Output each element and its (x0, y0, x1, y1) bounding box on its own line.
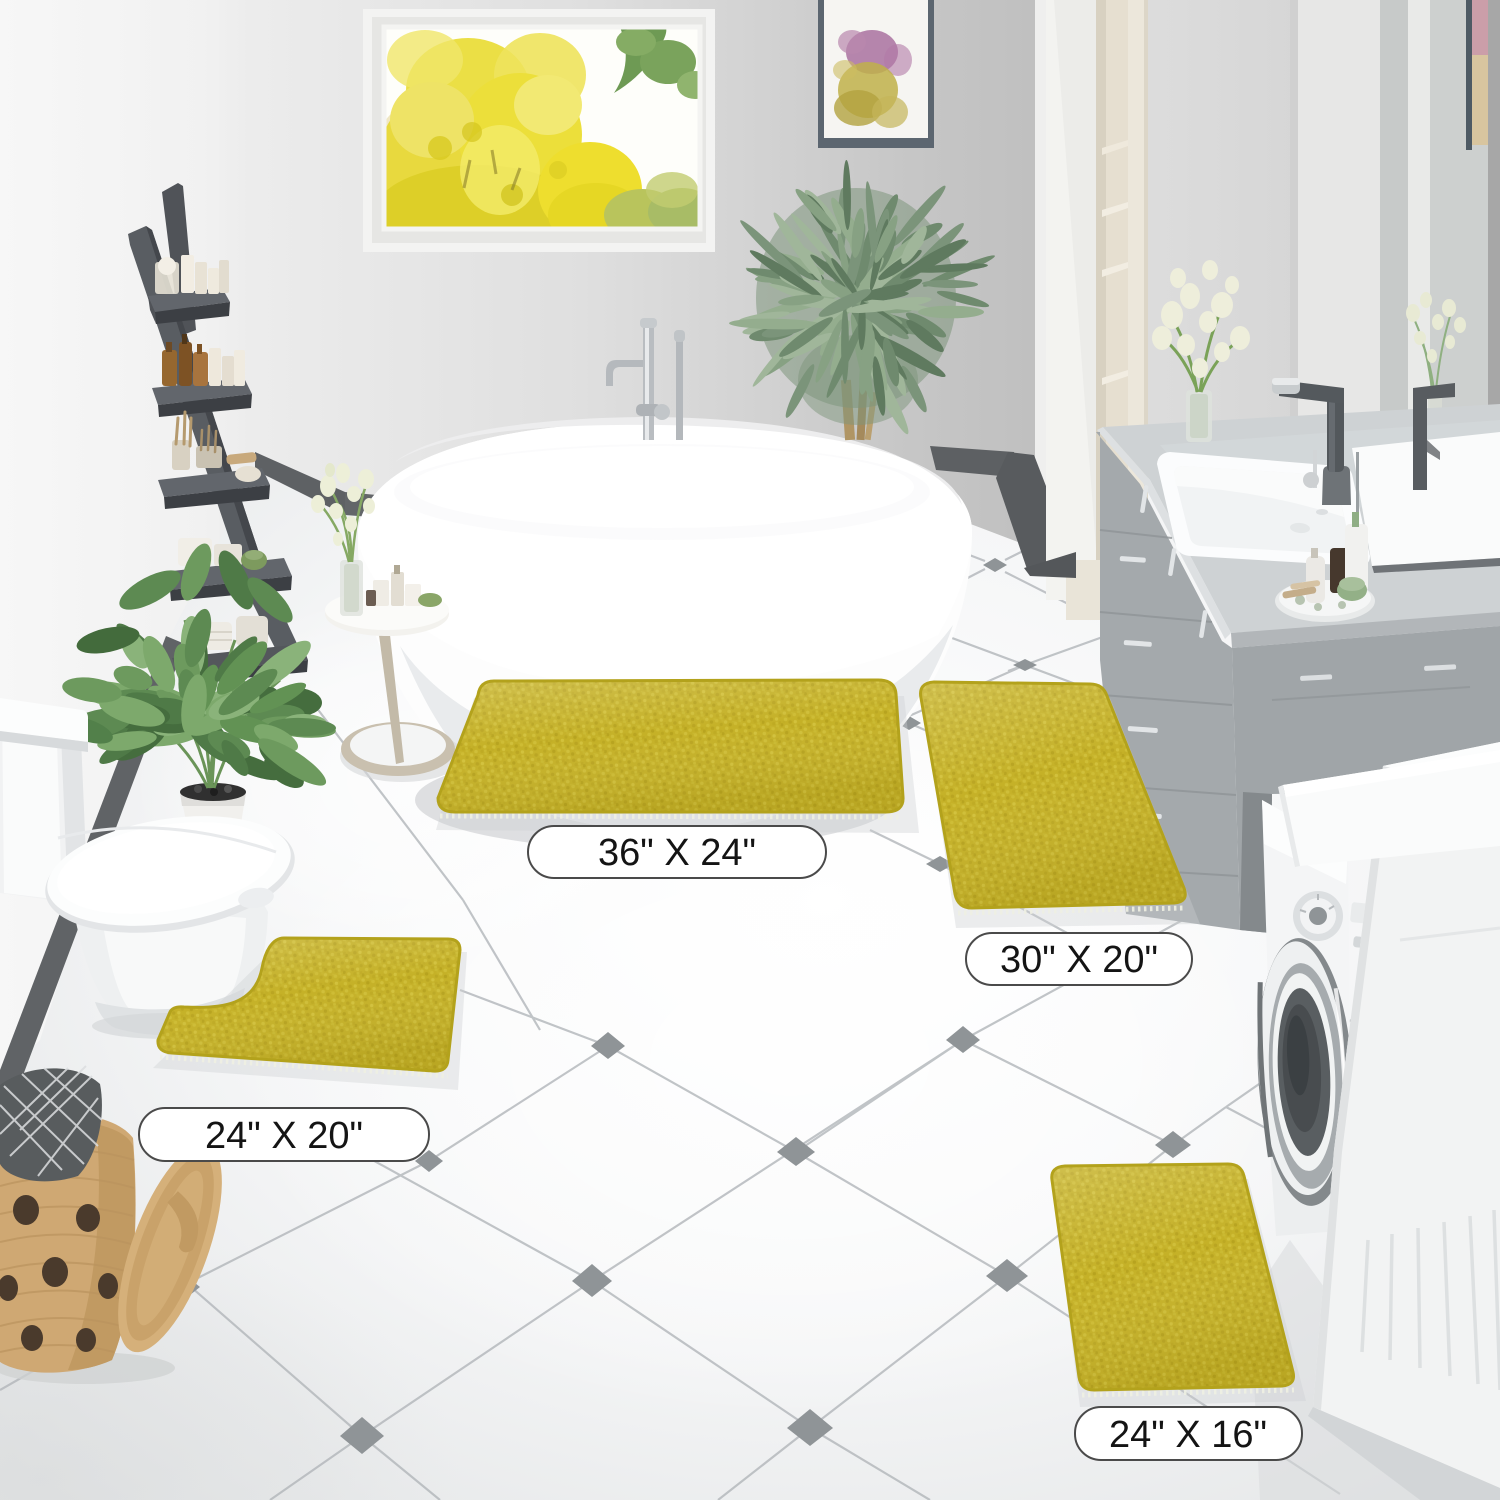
svg-text:24" X 16": 24" X 16" (1109, 1414, 1267, 1456)
svg-text:36" X 24": 36" X 24" (598, 832, 756, 874)
svg-text:24" X 20": 24" X 20" (205, 1115, 363, 1157)
svg-text:30" X 20": 30" X 20" (1000, 939, 1158, 981)
